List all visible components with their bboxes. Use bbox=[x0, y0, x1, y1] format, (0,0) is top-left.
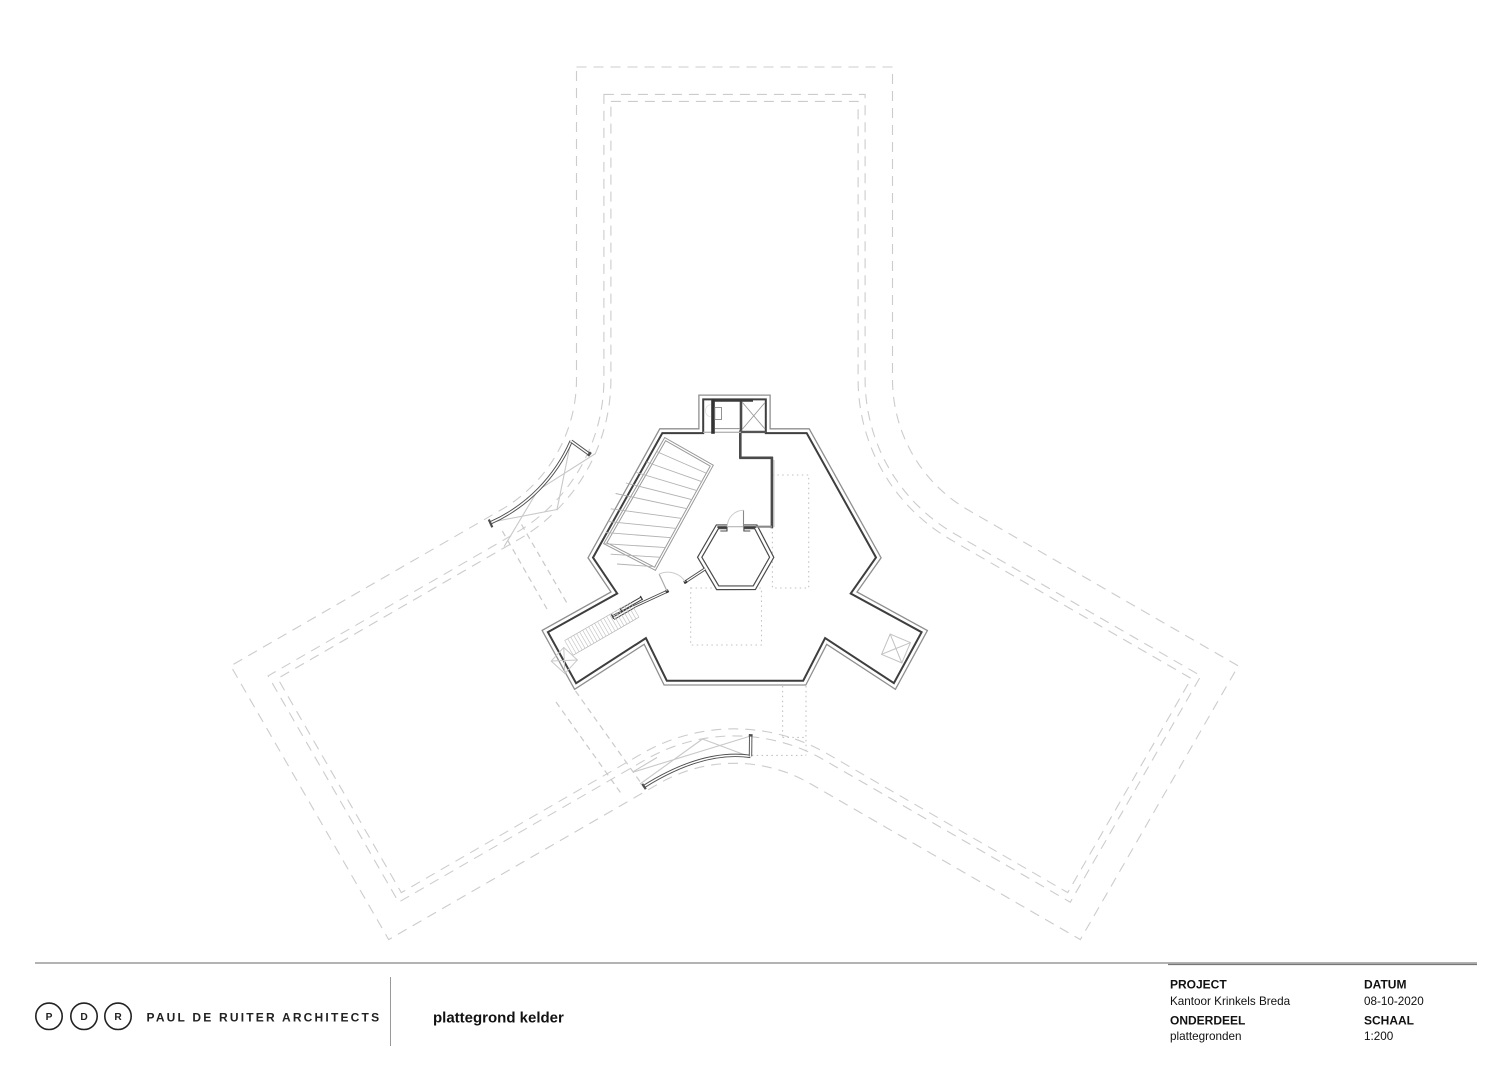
svg-text:P: P bbox=[46, 1012, 53, 1023]
svg-text:Kantoor Krinkels Breda: Kantoor Krinkels Breda bbox=[1170, 995, 1291, 1008]
svg-text:plattegronden: plattegronden bbox=[1170, 1030, 1241, 1043]
svg-text:PROJECT: PROJECT bbox=[1170, 978, 1227, 992]
svg-text:PAUL DE RUITER ARCHITECTS: PAUL DE RUITER ARCHITECTS bbox=[147, 1010, 382, 1024]
svg-text:SCHAAL: SCHAAL bbox=[1364, 1014, 1414, 1028]
svg-text:D: D bbox=[80, 1012, 87, 1023]
svg-text:08-10-2020: 08-10-2020 bbox=[1364, 995, 1424, 1008]
svg-text:1:200: 1:200 bbox=[1364, 1030, 1394, 1043]
svg-text:DATUM: DATUM bbox=[1364, 978, 1406, 992]
svg-text:plattegrond kelder: plattegrond kelder bbox=[433, 1010, 564, 1027]
svg-text:ONDERDEEL: ONDERDEEL bbox=[1170, 1014, 1245, 1028]
svg-text:R: R bbox=[114, 1012, 122, 1023]
